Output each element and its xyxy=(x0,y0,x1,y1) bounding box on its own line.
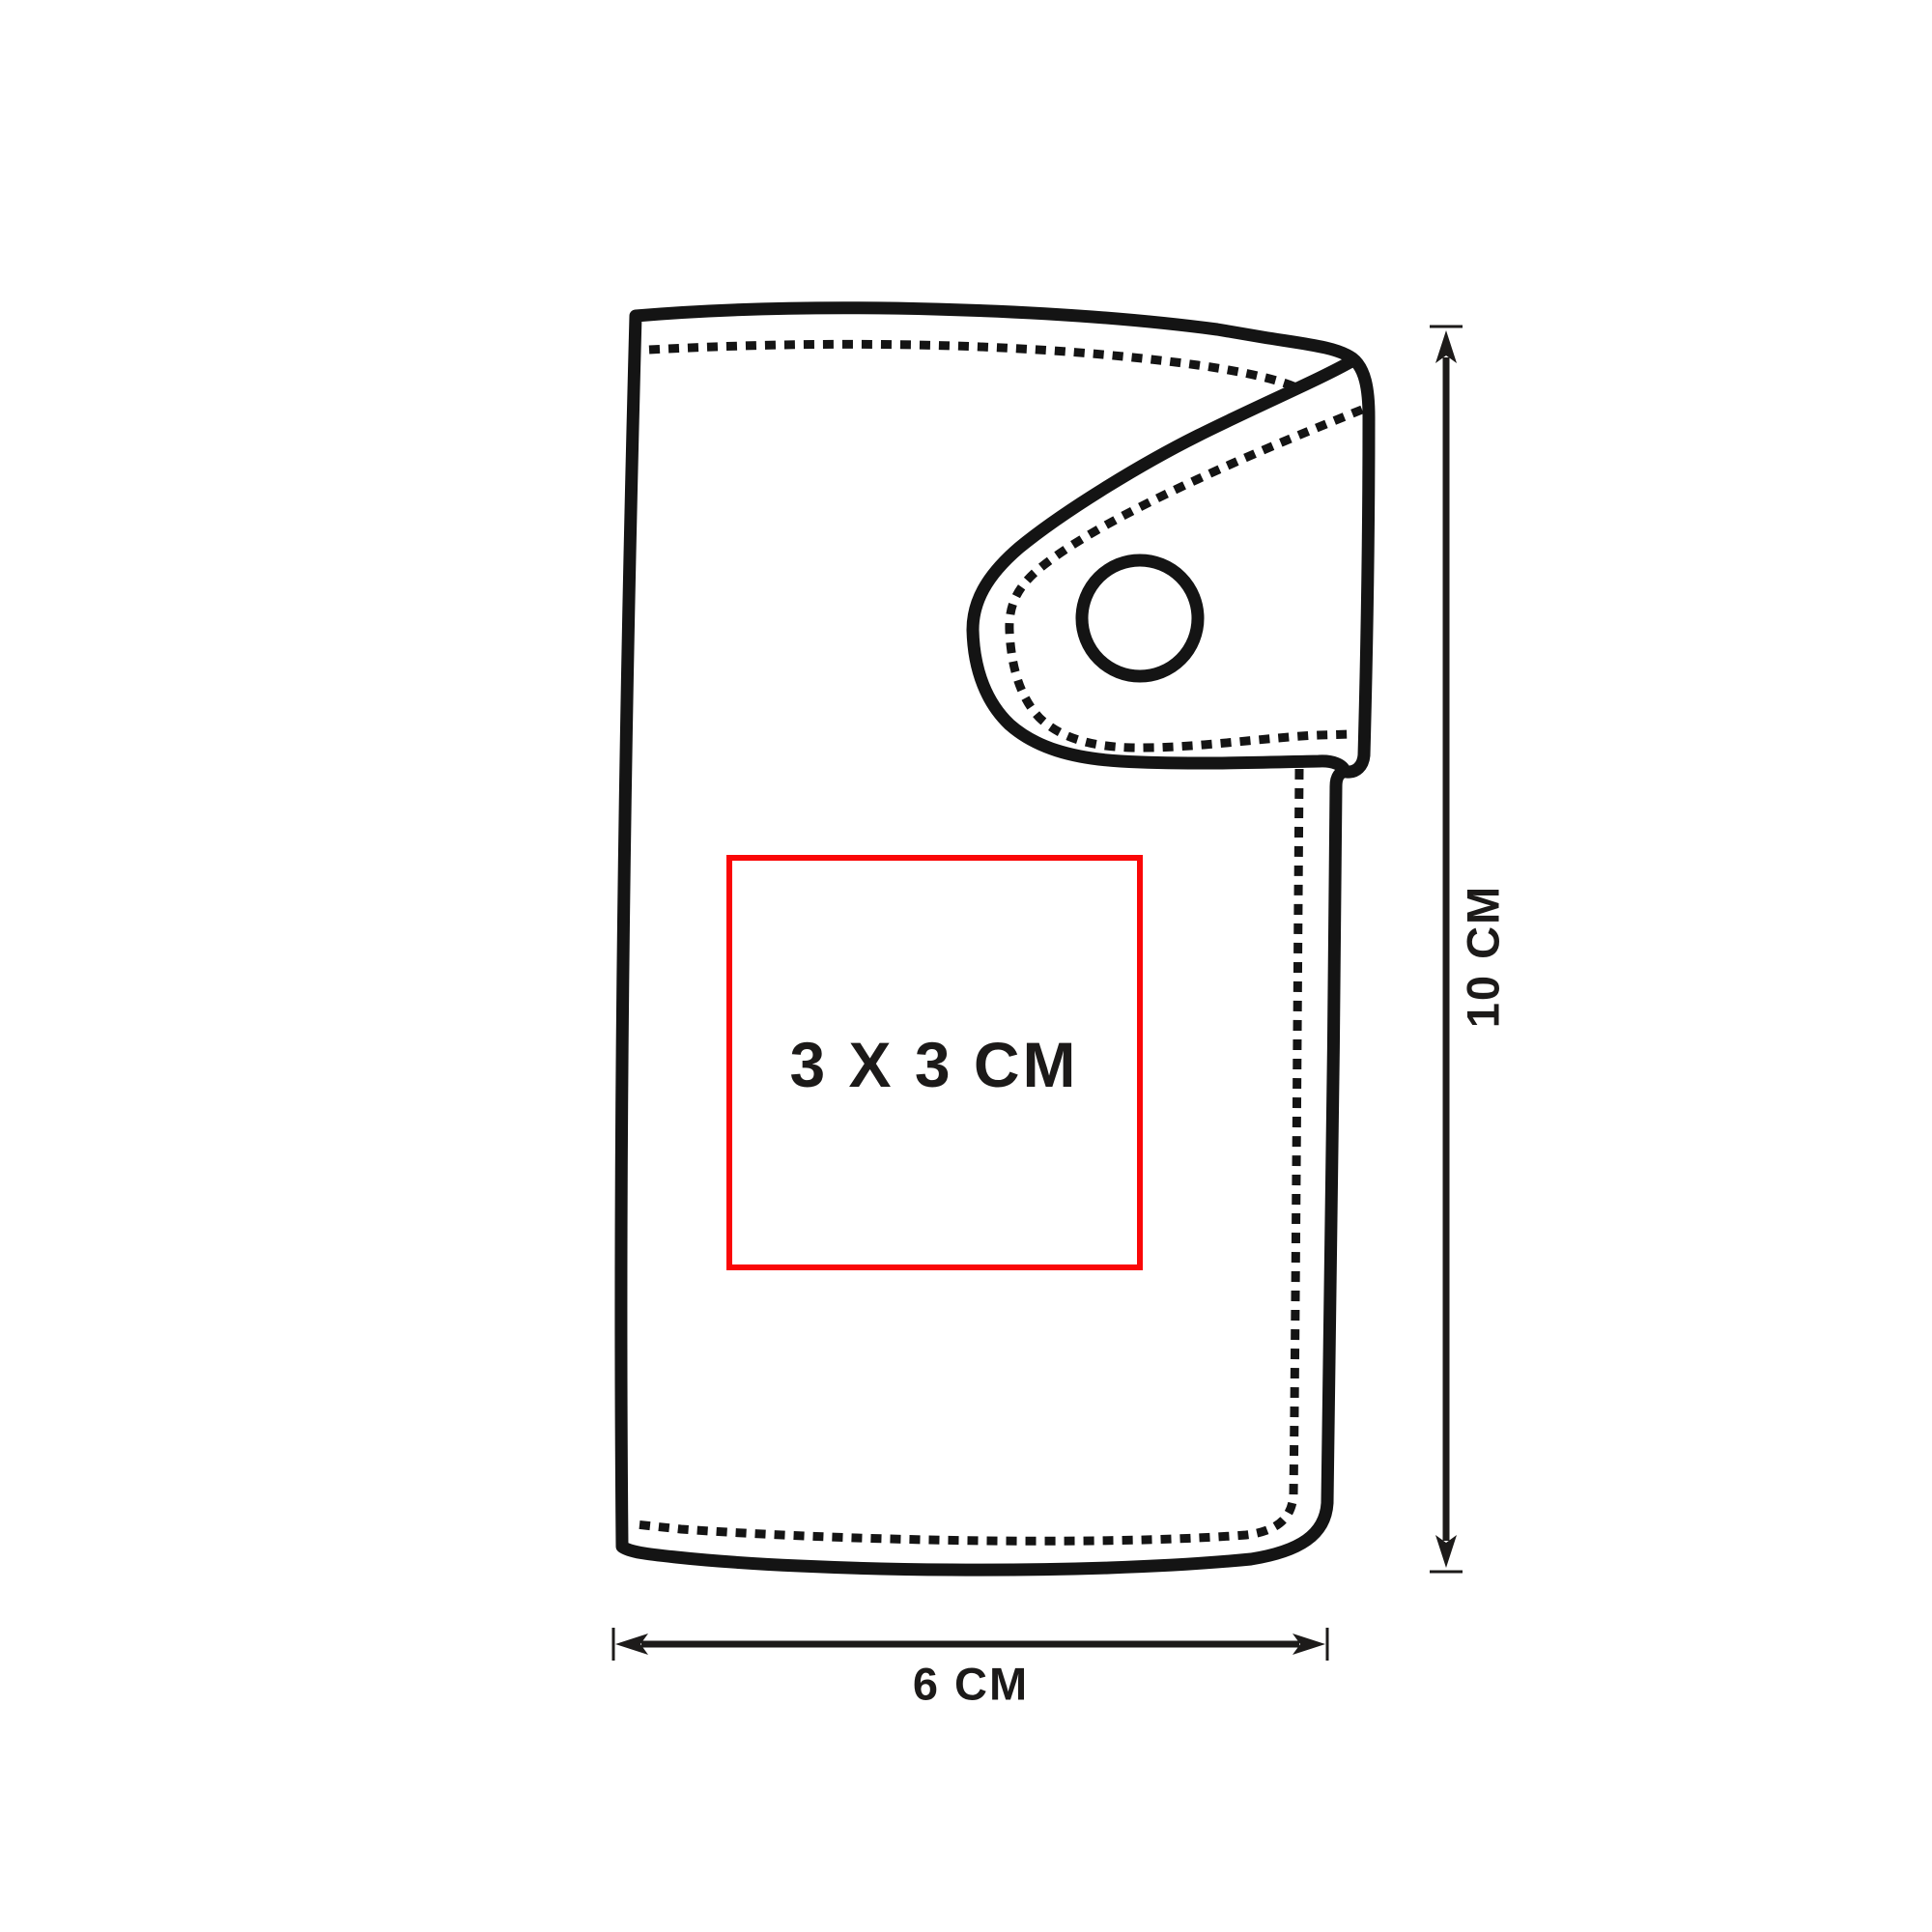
diagram-canvas: 3 X 3 CM 10 CM 6 CM xyxy=(0,0,1932,1932)
wallet-body-outline xyxy=(621,308,1369,1570)
height-dimension-label: 10 CM xyxy=(1457,885,1508,1028)
print-area-label: 3 X 3 CM xyxy=(789,1029,1078,1100)
width-dimension: 6 CM xyxy=(613,1628,1327,1709)
height-dimension: 10 CM xyxy=(1430,327,1508,1572)
imprint-area-diagram: 3 X 3 CM 10 CM 6 CM xyxy=(0,0,1932,1932)
width-dimension-label: 6 CM xyxy=(913,1658,1029,1709)
snap-button-circle xyxy=(1082,560,1198,676)
